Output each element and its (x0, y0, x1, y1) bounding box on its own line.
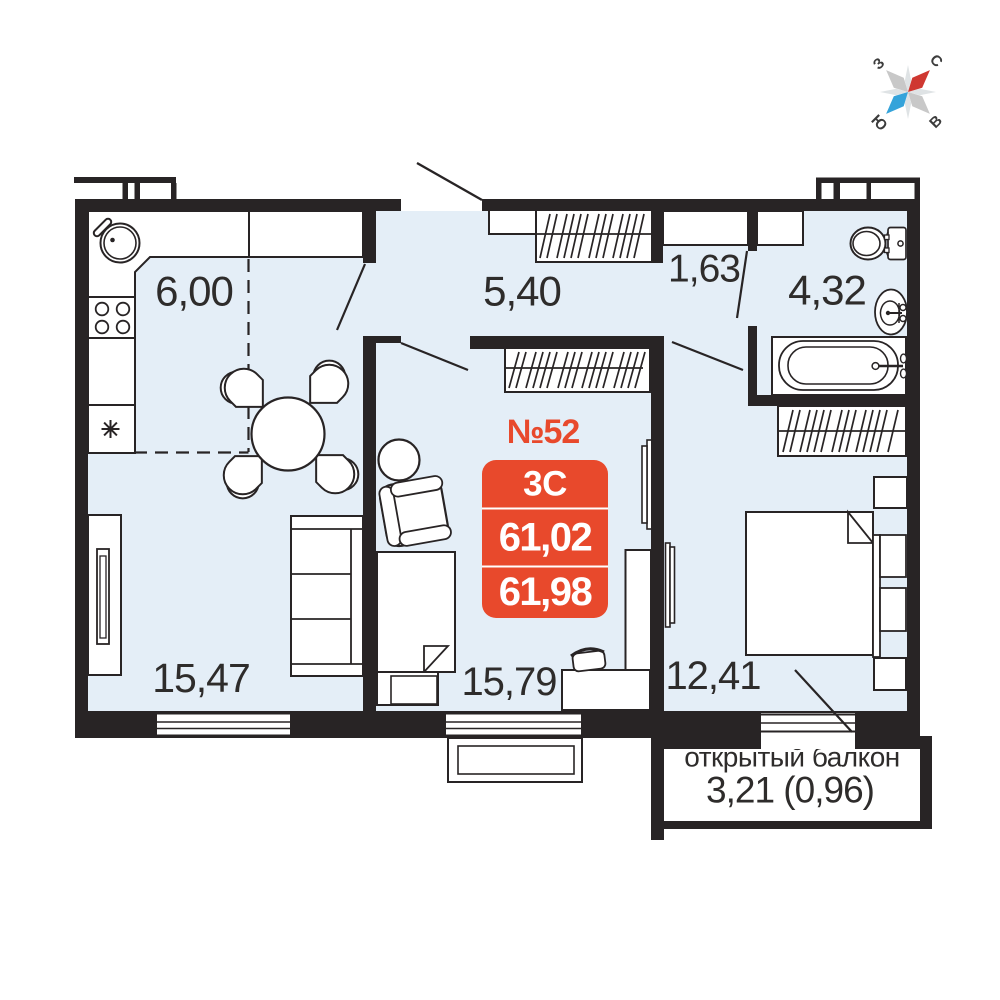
svg-text:4,32: 4,32 (788, 267, 866, 314)
svg-text:3С: 3С (523, 465, 567, 504)
svg-text:1,63: 1,63 (668, 248, 740, 291)
svg-text:61,02: 61,02 (499, 516, 592, 560)
svg-text:6,00: 6,00 (155, 268, 233, 315)
svg-text:12,41: 12,41 (665, 654, 760, 698)
svg-text:15,47: 15,47 (152, 655, 250, 701)
svg-text:61,98: 61,98 (499, 570, 593, 614)
svg-text:3,21 (0,96): 3,21 (0,96) (706, 770, 874, 811)
svg-text:№52: №52 (507, 413, 580, 451)
svg-text:15,79: 15,79 (461, 660, 556, 704)
svg-text:5,40: 5,40 (483, 268, 561, 315)
